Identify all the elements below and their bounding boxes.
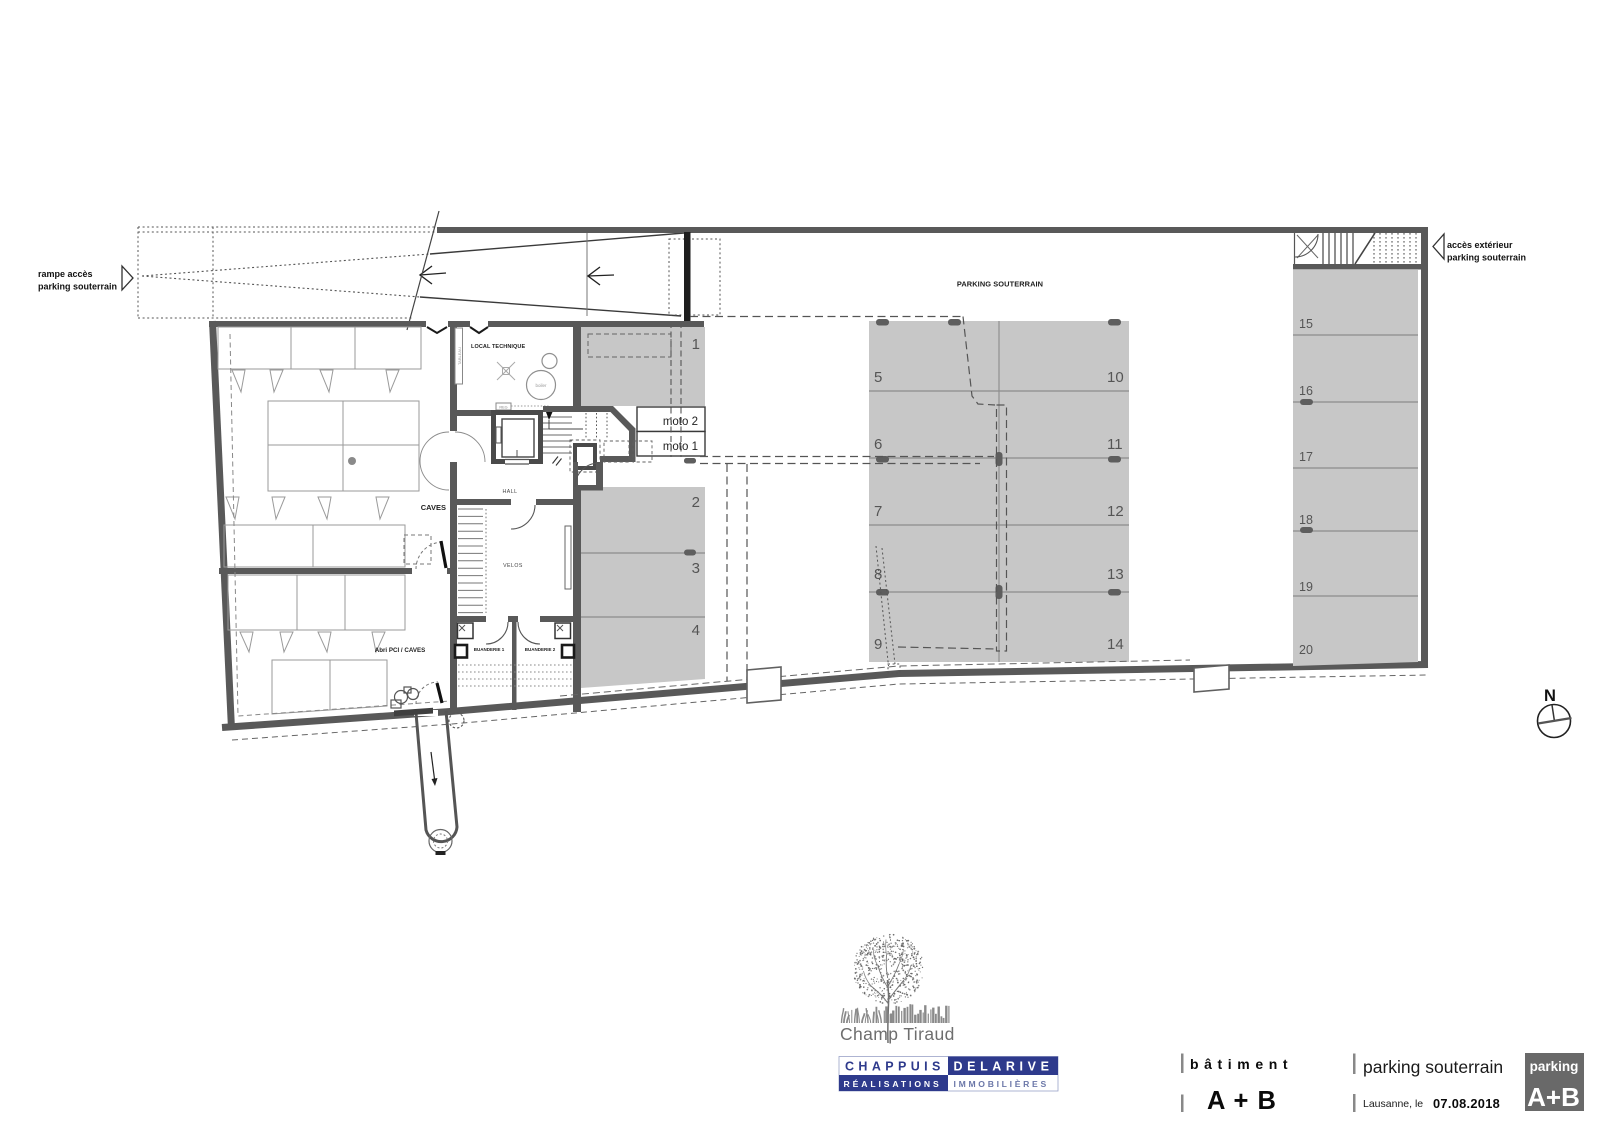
svg-text:moto 2: moto 2 xyxy=(663,416,698,428)
svg-text:Champ Tiraud: Champ Tiraud xyxy=(840,1024,955,1044)
svg-text:bâtiment: bâtiment xyxy=(1190,1056,1293,1072)
svg-text:7: 7 xyxy=(874,503,882,520)
svg-text:5: 5 xyxy=(874,369,882,386)
svg-text:HALL: HALL xyxy=(503,489,518,495)
svg-text:15: 15 xyxy=(1299,317,1313,331)
svg-text:Abri PCI / CAVES: Abri PCI / CAVES xyxy=(375,647,425,654)
svg-text:moto 1: moto 1 xyxy=(663,441,698,453)
svg-text:9: 9 xyxy=(874,636,882,653)
svg-text:CHAPPUIS: CHAPPUIS xyxy=(845,1060,945,1074)
svg-text:parking souterrain: parking souterrain xyxy=(1447,253,1526,263)
svg-text:boiler: boiler xyxy=(535,383,547,388)
svg-text:3: 3 xyxy=(692,560,700,577)
svg-text:17: 17 xyxy=(1299,450,1313,464)
svg-text:13: 13 xyxy=(1107,566,1124,583)
svg-text:RÉALISATIONS: RÉALISATIONS xyxy=(844,1079,942,1089)
svg-text:BUANDERIE 1: BUANDERIE 1 xyxy=(474,647,505,652)
svg-text:10: 10 xyxy=(1107,369,1124,386)
svg-text:parking souterrain: parking souterrain xyxy=(1363,1057,1503,1077)
svg-text:rampe accès: rampe accès xyxy=(38,269,93,279)
svg-text:PARKING SOUTERRAIN: PARKING SOUTERRAIN xyxy=(957,280,1043,289)
svg-text:LOCAL TECHNIQUE: LOCAL TECHNIQUE xyxy=(471,344,525,350)
svg-text:CAVES: CAVES xyxy=(421,503,446,512)
svg-text:accès extérieur: accès extérieur xyxy=(1447,240,1513,250)
svg-text:6: 6 xyxy=(874,436,882,453)
svg-text:4: 4 xyxy=(692,622,700,639)
svg-text:18: 18 xyxy=(1299,513,1313,527)
svg-text:parking: parking xyxy=(1530,1059,1579,1074)
svg-text:TABLEAU: TABLEAU xyxy=(457,347,462,365)
svg-text:16: 16 xyxy=(1299,384,1313,398)
svg-text:8: 8 xyxy=(874,566,882,583)
svg-text:A + B: A + B xyxy=(1207,1087,1277,1115)
svg-text:A+B: A+B xyxy=(1527,1082,1580,1112)
svg-text:07.08.2018: 07.08.2018 xyxy=(1433,1096,1500,1111)
svg-text:12: 12 xyxy=(1107,503,1124,520)
svg-text:11: 11 xyxy=(1107,436,1123,453)
svg-text:REG: REG xyxy=(499,406,507,410)
svg-text:N: N xyxy=(1544,687,1556,705)
svg-text:1: 1 xyxy=(692,336,700,353)
svg-text:parking souterrain: parking souterrain xyxy=(38,282,117,292)
svg-text:19: 19 xyxy=(1299,580,1313,594)
svg-text:VELOS: VELOS xyxy=(503,563,523,569)
svg-text:BUANDERIE 2: BUANDERIE 2 xyxy=(525,647,556,652)
svg-text:2: 2 xyxy=(692,494,700,511)
svg-text:Lausanne, le: Lausanne, le xyxy=(1363,1098,1423,1110)
svg-text:14: 14 xyxy=(1107,636,1124,653)
svg-text:DELARIVE: DELARIVE xyxy=(954,1060,1054,1074)
svg-text:IMMOBILIÈRES: IMMOBILIÈRES xyxy=(954,1079,1049,1089)
svg-text:20: 20 xyxy=(1299,643,1313,657)
